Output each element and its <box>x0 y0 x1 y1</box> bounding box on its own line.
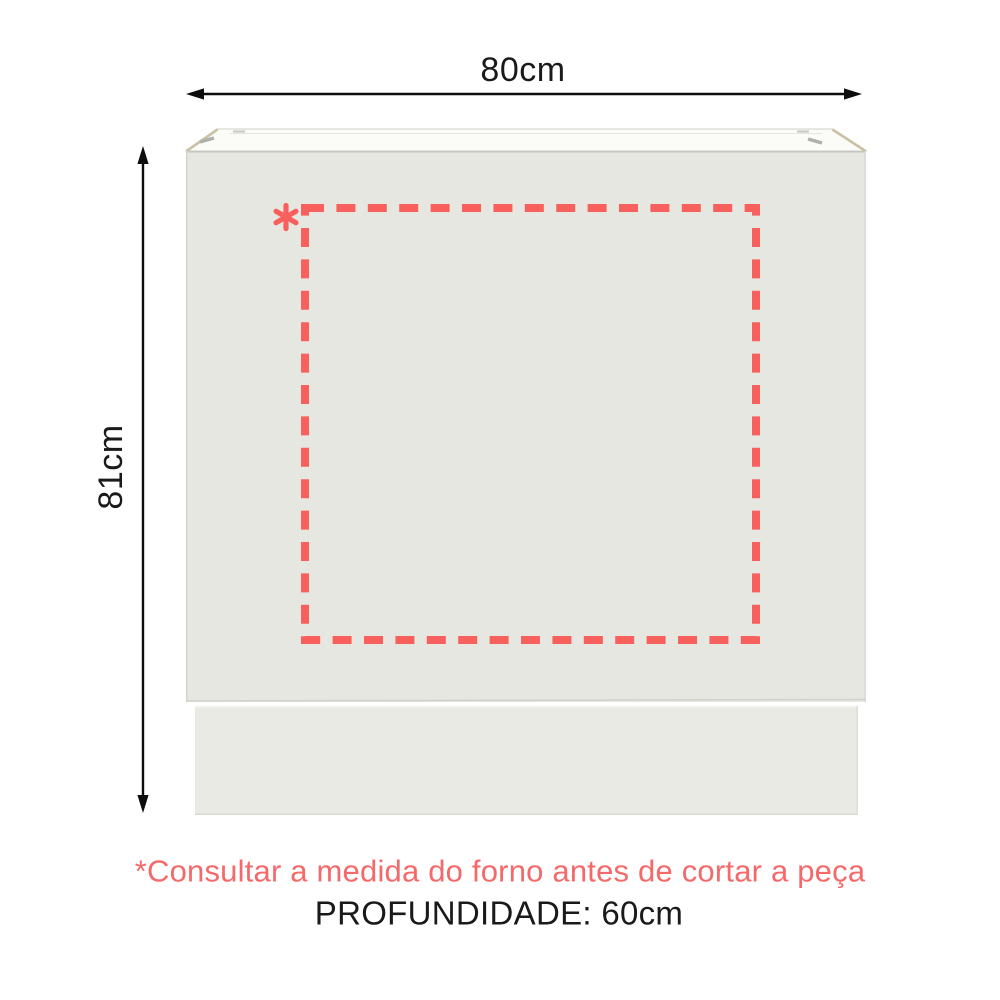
dimension-diagram: 80cm 81cm *Consultar a medida do forno a… <box>0 0 1000 1000</box>
height-dimension-label: 81cm <box>94 424 128 509</box>
cabinet-body <box>186 129 866 815</box>
footnote-text: *Consultar a medida do forno antes de co… <box>135 856 866 887</box>
width-dimension-label: 80cm <box>480 53 565 87</box>
cabinet-illustration <box>0 0 1000 1000</box>
height-arrowhead-top-icon <box>137 146 148 164</box>
width-arrowhead-right-icon <box>844 88 862 99</box>
width-arrowhead-left-icon <box>186 88 204 99</box>
cabinet-plinth <box>195 706 858 815</box>
depth-dimension-label: PROFUNDIDADE: 60cm <box>315 897 683 930</box>
height-arrowhead-bottom-icon <box>137 795 148 813</box>
cabinet-front-panel <box>186 151 866 702</box>
cabinet-top-rim <box>186 129 866 151</box>
